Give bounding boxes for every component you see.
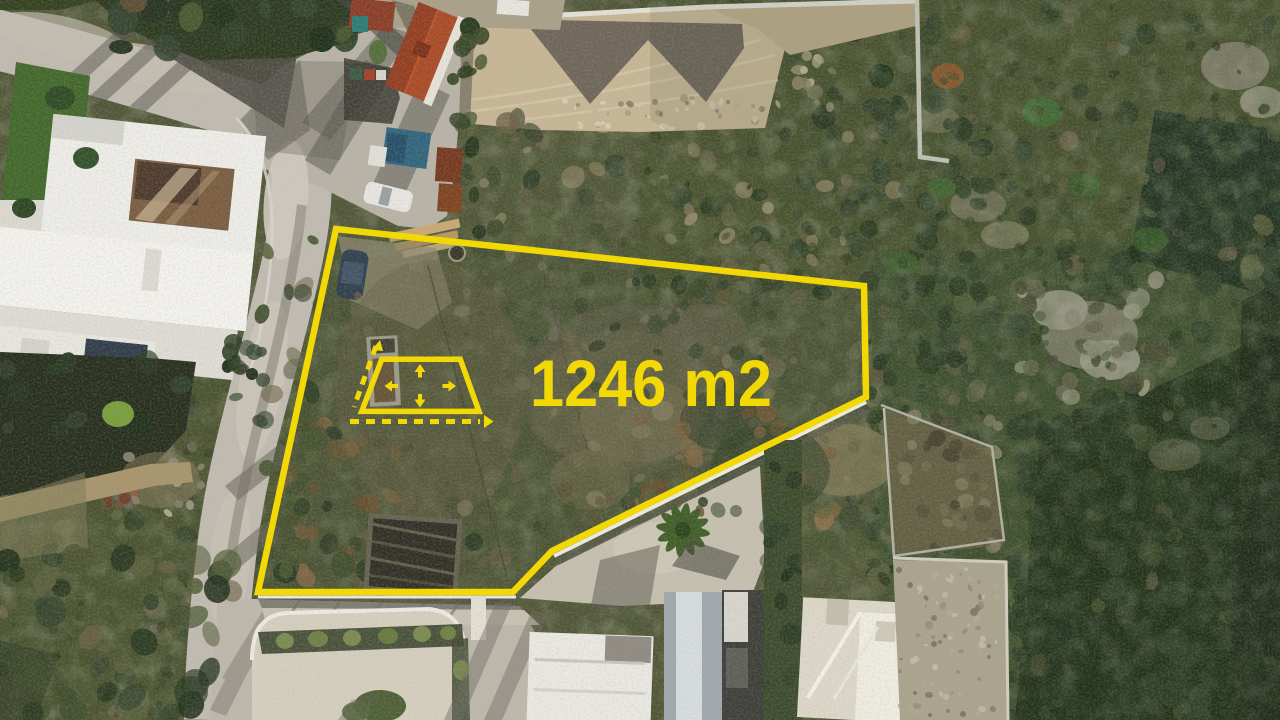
svg-text:1246 m2: 1246 m2 — [530, 346, 772, 420]
